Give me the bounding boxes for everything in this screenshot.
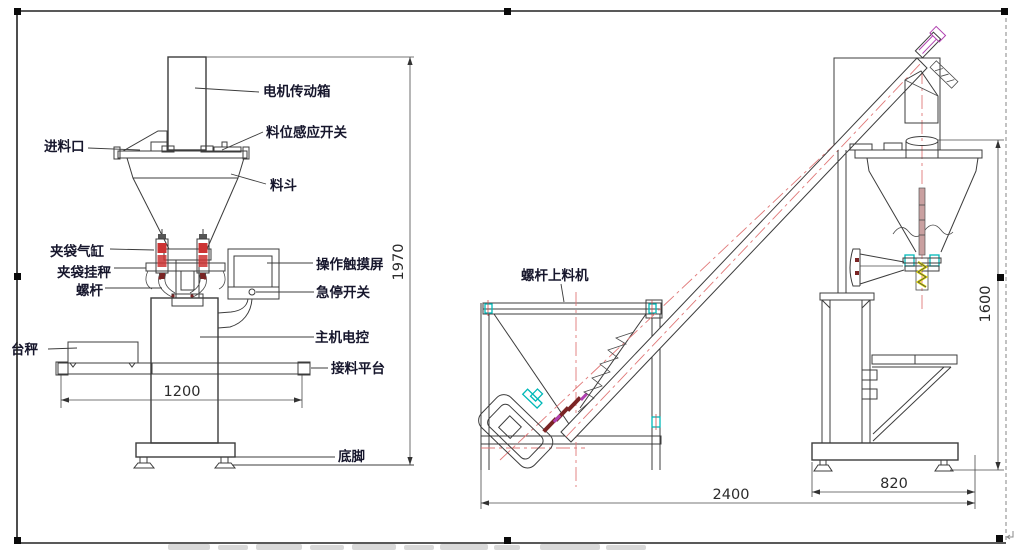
label-screw-feeder: 螺杆上料机	[521, 267, 589, 283]
dim-820: 820	[880, 476, 908, 492]
label-emergency-stop: 急停开关	[316, 284, 370, 300]
label-bag-scale: 夹袋挂秤	[57, 264, 111, 280]
labels-right: 螺杆上料机	[521, 267, 589, 302]
selection-handle-right-middle[interactable]	[997, 274, 1004, 281]
machine-base	[134, 443, 414, 468]
hopper	[127, 158, 244, 249]
head-bracket	[850, 249, 904, 286]
label-screw: 螺杆	[76, 282, 103, 298]
receiving-platform	[56, 362, 310, 375]
motor-fitting	[523, 384, 547, 408]
selection-handle-bottom-left[interactable]	[14, 537, 21, 544]
selection-handle-top-right[interactable]	[1001, 8, 1008, 15]
filler-base	[812, 443, 958, 471]
monitor-cable	[218, 299, 248, 313]
filler-column	[820, 293, 877, 443]
engineering-drawing: 电机传动箱 料位感应开关 进料口 料斗 夹袋气缸 夹袋挂秤 螺杆 操作触摸屏 急…	[0, 0, 1015, 550]
tube-bracket	[930, 61, 958, 88]
label-foot: 底脚	[338, 448, 365, 464]
label-level-sensor: 料位感应开关	[266, 124, 347, 140]
document-canvas: 电机传动箱 料位感应开关 进料口 料斗 夹袋气缸 夹袋挂秤 螺杆 操作触摸屏 急…	[0, 0, 1015, 550]
filler-side-view	[812, 143, 982, 471]
emergency-stop-button	[249, 289, 255, 295]
filling-machine-front-view: 电机传动箱 料位感应开关 进料口 料斗 夹袋气缸 夹袋挂秤 螺杆 操作触摸屏 急…	[11, 57, 414, 468]
label-bag-cylinder: 夹袋气缸	[50, 243, 104, 259]
paragraph-return-icon	[1007, 531, 1013, 539]
dimension-feeder-height: 1600	[938, 140, 1004, 470]
touch-screen-monitor	[218, 249, 279, 328]
dim-1200: 1200	[164, 384, 201, 400]
selection-handle-bottom-middle[interactable]	[504, 537, 511, 544]
conveyor-tube	[561, 58, 927, 442]
selection-handle-left-middle[interactable]	[14, 273, 21, 280]
dim-1970: 1970	[391, 244, 407, 281]
watermark	[168, 544, 646, 550]
selection-handle-top-left[interactable]	[14, 8, 21, 15]
dim-1600: 1600	[978, 286, 994, 323]
tube-drive-head	[914, 26, 958, 88]
selection-handle-bottom-right[interactable]	[996, 535, 1003, 542]
screw-shaft	[919, 188, 925, 255]
feed-inlet	[123, 131, 167, 151]
dimension-feeder-base: 820	[812, 455, 975, 509]
control-cabinet	[151, 298, 218, 443]
dimension-main-width: 1200	[61, 375, 302, 408]
label-bench-scale: 台秤	[11, 341, 38, 357]
motor-gearbox	[162, 57, 213, 152]
bench-scale	[68, 342, 138, 367]
label-hopper: 料斗	[270, 177, 297, 193]
screw-feeder-side-view: 螺杆上料机 1600 820 2400	[474, 26, 1004, 509]
bag-shelf	[872, 355, 957, 441]
selection-handle-top-middle[interactable]	[504, 8, 511, 15]
label-platform: 接料平台	[331, 360, 385, 376]
label-main-control: 主机电控	[315, 329, 369, 345]
label-touch-screen: 操作触摸屏	[316, 256, 384, 272]
hopper-lid	[114, 147, 249, 159]
label-feed-inlet: 进料口	[44, 138, 85, 154]
dim-2400: 2400	[713, 487, 750, 503]
label-motor-gearbox: 电机传动箱	[263, 83, 331, 99]
